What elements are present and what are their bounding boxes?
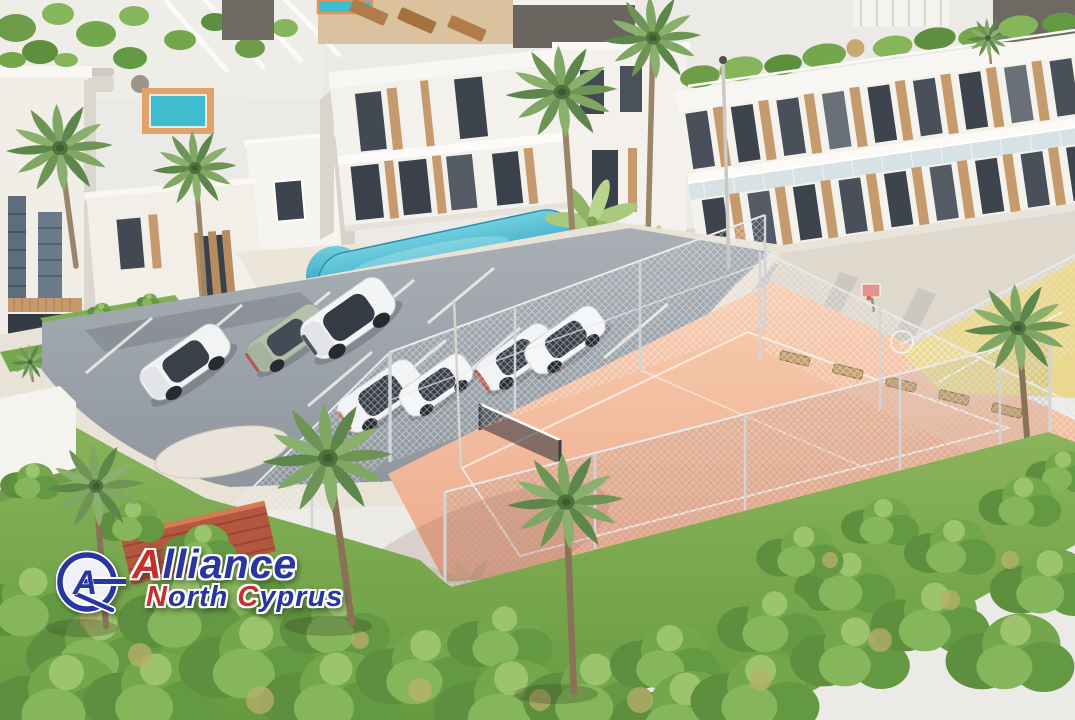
pool-lounger xyxy=(216,96,242,105)
glass-door xyxy=(492,151,523,205)
render-scene xyxy=(0,0,1075,720)
wood-slat-band xyxy=(8,298,82,312)
glass-door xyxy=(398,159,431,216)
window xyxy=(116,218,144,270)
architectural-render: A Alliance North Cyprus xyxy=(0,0,1075,720)
pool-lounger xyxy=(216,108,242,117)
building-side-face xyxy=(320,88,334,240)
glass-door xyxy=(351,164,384,221)
rooftop-sun-deck xyxy=(318,0,514,44)
rooftop-pergola xyxy=(853,0,949,26)
building-villa-center xyxy=(329,48,574,231)
louver-window xyxy=(8,196,26,306)
louver-window xyxy=(38,212,62,300)
rooftop-structure xyxy=(222,0,274,40)
tower-window xyxy=(274,179,305,221)
